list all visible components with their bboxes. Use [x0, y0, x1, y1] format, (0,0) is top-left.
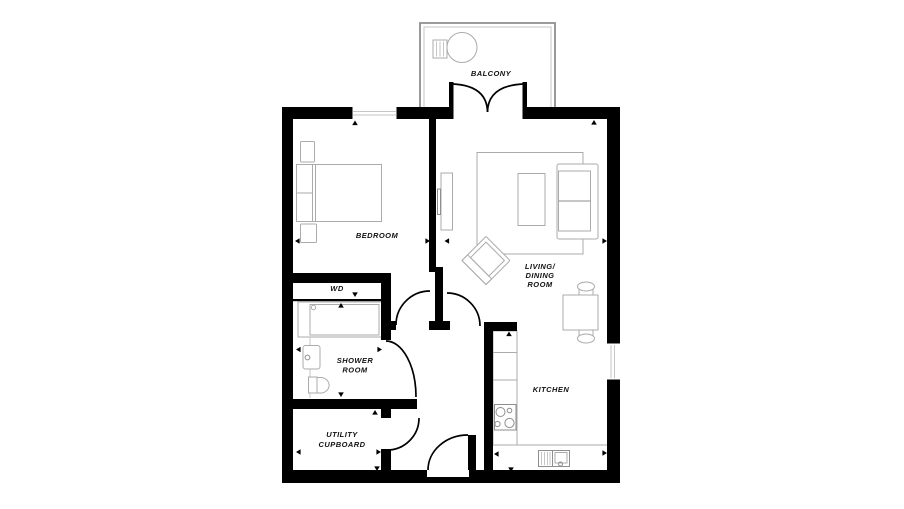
sink-drainer-grooves: [542, 452, 551, 465]
wall-bottom-left: [282, 470, 427, 483]
wall-kitchen-west: [484, 322, 493, 470]
floor-plan-canvas: BALCONY BEDROOM LIVING/ DINING ROOM WD S…: [0, 0, 904, 509]
wall-right-lower: [607, 382, 620, 483]
wall-left: [282, 107, 293, 483]
shower-door-swing: [386, 341, 416, 397]
dining-chair-bottom: [578, 334, 595, 343]
balcony-table: [447, 33, 477, 63]
label-utility-line1: UTILITY: [326, 430, 358, 439]
label-shower-line1: SHOWER: [337, 356, 374, 365]
wall-bedroom-living-foot: [429, 321, 450, 330]
wall-utility-east-upper: [381, 409, 391, 418]
label-living-line2: DINING: [526, 271, 555, 280]
wall-top-2: [399, 107, 449, 119]
arrow-left-kitchen: [494, 451, 499, 457]
arrow-right-utility: [376, 449, 381, 455]
arrow-left-bedroom: [295, 238, 300, 244]
wall-bottom-right: [469, 470, 620, 483]
wall-bedroom-living-lower: [435, 267, 443, 321]
wall-shower-utility-divider: [282, 399, 417, 409]
label-shower-line2: ROOM: [342, 366, 367, 375]
label-balcony: BALCONY: [471, 69, 512, 78]
bedroom-furniture: [297, 142, 382, 243]
arrow-up-utility-top: [372, 410, 378, 415]
tv-unit: [441, 173, 453, 230]
wall-bedroom-living-upper: [429, 119, 436, 272]
arrow-up-bedroom-top: [352, 121, 358, 126]
kitchen-window: [607, 341, 620, 382]
wall-utility-east-lower: [381, 449, 391, 470]
kitchen-window-cap-bottom: [607, 380, 620, 383]
arrow-down-shower-bottom: [338, 392, 344, 397]
room-labels: BALCONY BEDROOM LIVING/ DINING ROOM WD S…: [319, 69, 570, 449]
wall-hall-west-upper: [381, 283, 391, 340]
arrow-up-living-top: [591, 120, 597, 125]
nightstand-top: [301, 142, 315, 163]
balcony-door-jamb-right: [523, 82, 528, 119]
label-wd: WD: [330, 284, 344, 293]
arrow-right-kitchen: [602, 450, 607, 456]
shower-room-fittings: [298, 302, 382, 398]
tv-screen: [438, 189, 441, 215]
arrow-right-living: [602, 238, 607, 244]
toilet-bowl: [317, 378, 329, 394]
living-furniture: [438, 153, 599, 285]
label-living-line3: ROOM: [527, 280, 552, 289]
dining-furniture: [563, 282, 598, 343]
coffee-table: [518, 174, 545, 226]
armchair-frame: [462, 236, 510, 284]
wall-top-1: [282, 107, 350, 119]
entry-door-swing: [428, 435, 468, 470]
arrow-down-wd: [352, 292, 358, 297]
bedroom-window-cap-right: [397, 107, 400, 119]
wall-kitchen-north: [484, 322, 517, 331]
label-bedroom: BEDROOM: [356, 231, 399, 240]
toilet-cistern: [309, 377, 318, 393]
kitchen-window-cap-top: [607, 341, 620, 344]
kitchen-counter-west: [493, 331, 517, 445]
kitchen-fittings: [493, 331, 607, 467]
label-living-line1: LIVING/: [525, 262, 556, 271]
utility-door-swing: [386, 418, 419, 450]
floor-plan: BALCONY BEDROOM LIVING/ DINING ROOM WD S…: [0, 0, 904, 509]
bedroom-door-swing: [396, 291, 430, 325]
label-utility-line2: CUPBOARD: [319, 440, 366, 449]
arrow-left-utility: [296, 449, 301, 455]
balcony-door-jamb-left: [449, 82, 454, 119]
balcony-door-right-swing: [488, 84, 523, 112]
bedroom-door-jamb: [381, 321, 396, 330]
living-door-swing: [447, 293, 480, 326]
bedroom-window: [350, 107, 399, 119]
bedroom-window-cap-left: [350, 107, 353, 119]
dining-table: [563, 295, 598, 330]
sink-basin-inner: [555, 453, 567, 464]
arrow-right-shower: [377, 347, 382, 353]
nightstand-bottom: [301, 224, 317, 243]
wall-right-upper: [607, 107, 620, 341]
entry-door-stub: [468, 435, 476, 470]
entry-threshold: [427, 477, 469, 483]
label-kitchen: KITCHEN: [533, 385, 570, 394]
balcony-door-left-swing: [454, 84, 488, 112]
arrow-left-living: [445, 238, 450, 244]
arrow-left-shower: [296, 347, 301, 353]
dining-chair-top: [578, 282, 595, 291]
wd-closet-front: [293, 299, 383, 301]
armchair: [462, 236, 510, 284]
wall-top-3: [527, 107, 620, 119]
wall-bedroom-south: [293, 273, 391, 283]
